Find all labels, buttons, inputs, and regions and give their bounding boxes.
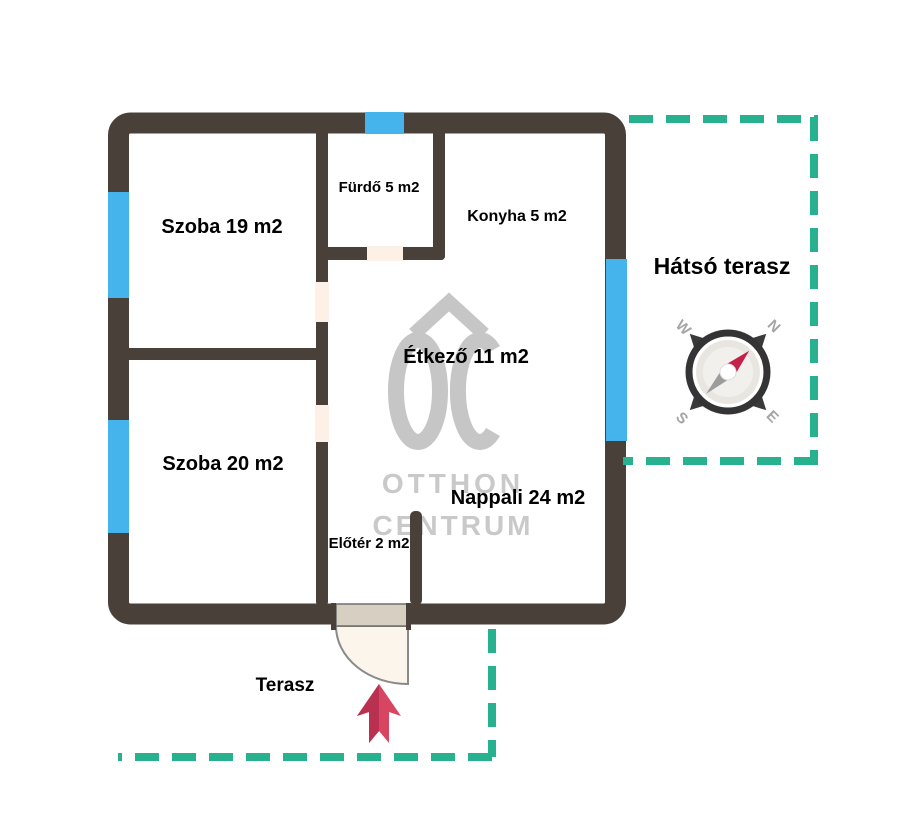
entrance-door [331,603,411,684]
compass-label-n: N [764,317,784,337]
window-top [365,112,404,134]
opening-szoba19 [315,282,329,322]
floorplan-canvas: OTTHON CENTRUM [0,0,900,840]
room-label-eloter: Előtér 2 m2 [329,536,410,553]
opening-szoba20 [315,405,329,442]
door-swing-arc [336,626,408,684]
floorplan-page: OTTHON CENTRUM [0,0,900,840]
room-label-konyha: Konyha 5 m2 [467,208,567,226]
room-label-szoba20: Szoba 20 m2 [162,453,283,475]
wall-center-vertical [316,128,328,605]
room-label-nappali: Nappali 24 m2 [451,487,586,509]
room-label-szoba19: Szoba 19 m2 [161,216,282,238]
outdoor-label-terasz: Terasz [256,676,315,697]
opening-furdo [367,246,403,261]
entrance-arrow-icon [357,684,401,743]
room-label-furdo: Fürdő 5 m2 [339,180,420,197]
room-label-etkezo: Étkező 11 m2 [403,346,529,368]
door-frame-right [406,603,411,630]
wall-eloter-right [410,511,422,605]
window-right [606,259,627,441]
compass-label-e: E [763,407,782,426]
outdoor-label-hatso-terasz: Hátsó terasz [654,254,791,279]
window-left-upper [108,192,129,298]
wall-furdo-right [433,128,445,260]
door-openings [315,246,403,442]
compass-icon: N E S W [626,271,828,473]
window-left-lower [108,420,129,533]
compass-label-s: S [672,409,691,428]
roof-chevron-icon [414,302,484,334]
wall-szoba-divider [124,348,318,360]
door-leaf [336,604,408,626]
door-frame-left [331,603,336,630]
